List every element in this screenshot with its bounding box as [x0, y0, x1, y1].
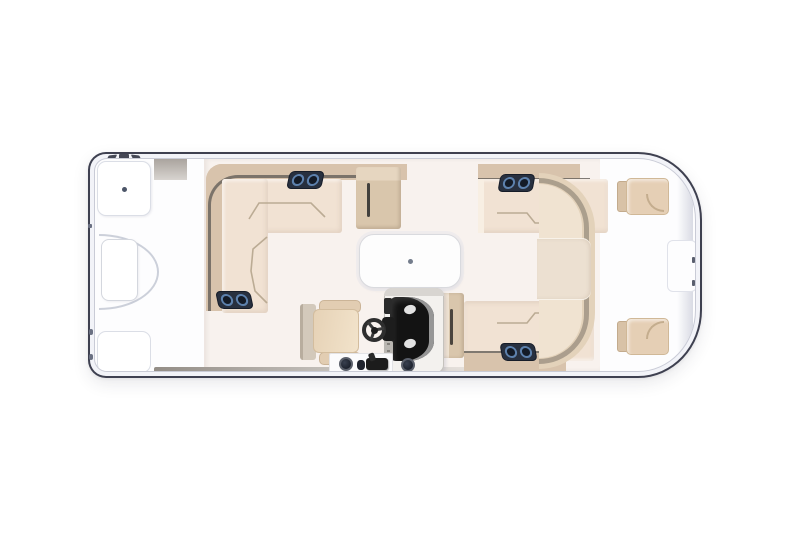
throttle-control: [366, 358, 388, 370]
cup-holder-icon: [339, 357, 353, 371]
stern-jump-seat-bottom: [626, 318, 669, 355]
captains-chair-seat: [313, 309, 359, 353]
wheel-hub: [371, 327, 378, 334]
hatch-latch-icon: [122, 187, 127, 192]
speaker-icon: [517, 177, 531, 189]
table-pedestal-mount-icon: [408, 259, 413, 264]
helm-console-cap: [384, 288, 444, 296]
lounge-storage-console: [356, 167, 401, 229]
speaker-icon: [519, 346, 533, 358]
seat-seam: [646, 194, 664, 212]
speaker-icon: [235, 294, 250, 306]
seat-seam: [646, 321, 664, 339]
steering-wheel: [362, 318, 386, 342]
control-knob-icon: [357, 360, 365, 370]
cup-holder-icon: [401, 358, 415, 372]
deck: [94, 158, 696, 372]
speaker-pair: [215, 291, 254, 309]
bow-step: [154, 159, 187, 180]
pontoon-hull: [88, 152, 702, 378]
bow-storage-hatch-bottom: [97, 331, 151, 372]
speaker-pair: [497, 174, 535, 192]
speaker-icon: [502, 177, 516, 189]
speaker-icon: [220, 294, 235, 306]
boarding-ladder-icon: [692, 280, 695, 286]
speaker-icon: [504, 346, 518, 358]
stern-walkway-pad: [537, 239, 591, 299]
boarding-ladder-icon: [692, 257, 695, 263]
speaker-icon: [291, 174, 306, 186]
console-slot-icon: [450, 309, 453, 345]
speaker-icon: [306, 174, 321, 186]
switch-panel: [384, 298, 392, 314]
seat-end-cap: [478, 179, 484, 233]
gate-hinge-icon: [89, 354, 93, 360]
rail-seam-icon: [88, 224, 92, 228]
boat-floorplan-image: [0, 0, 800, 534]
seat-seam: [247, 199, 327, 221]
gate-hinge-icon: [89, 329, 93, 335]
speaker-pair: [286, 171, 325, 189]
stern-cleat-icon: [673, 166, 678, 171]
bow-boarding-gate: [101, 239, 138, 301]
aft-storage-console: [441, 293, 464, 358]
stern-jump-seat-top: [626, 178, 669, 215]
console-slot-icon: [367, 183, 370, 217]
stern-cleat-icon: [670, 362, 675, 367]
seat-seam: [249, 237, 269, 307]
speaker-pair: [499, 343, 537, 361]
